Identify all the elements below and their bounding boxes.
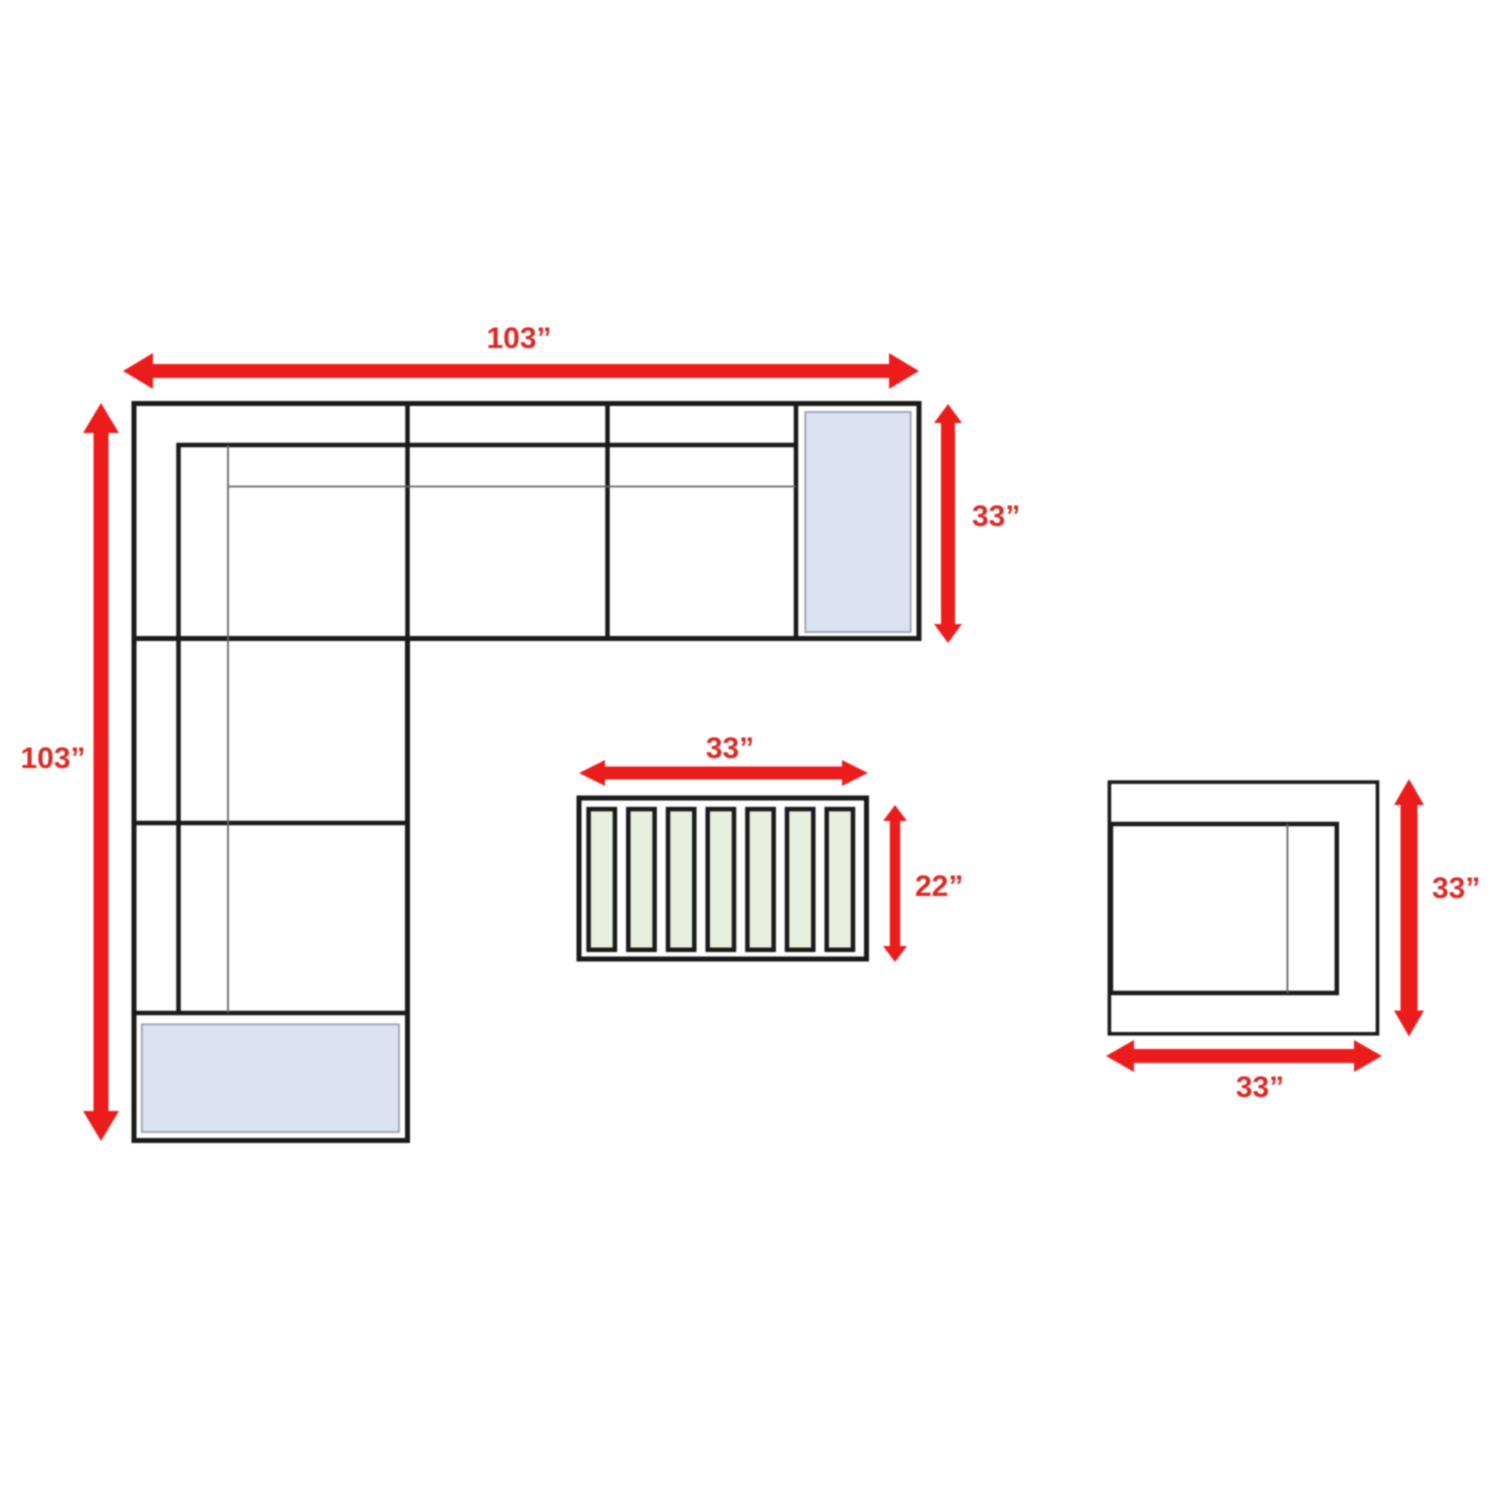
- svg-text:33”: 33”: [1236, 1071, 1284, 1104]
- svg-text:103”: 103”: [20, 742, 85, 775]
- svg-text:33”: 33”: [1432, 872, 1480, 905]
- svg-text:33”: 33”: [706, 732, 754, 765]
- svg-text:22”: 22”: [915, 870, 963, 903]
- svg-text:33”: 33”: [972, 500, 1020, 533]
- svg-text:103”: 103”: [486, 322, 551, 355]
